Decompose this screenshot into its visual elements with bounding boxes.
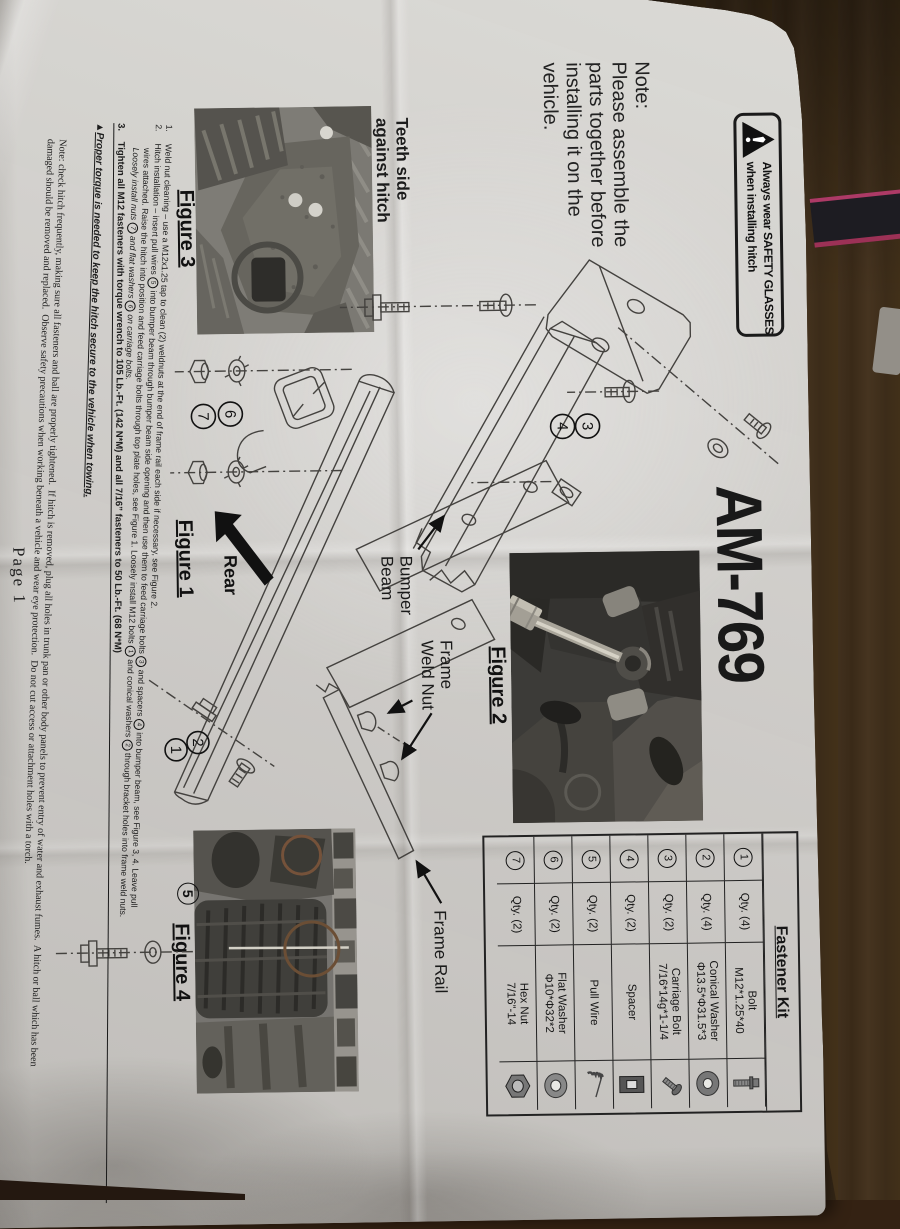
svg-text:6: 6 — [221, 410, 238, 419]
svg-text:1: 1 — [167, 746, 184, 755]
svg-text:2: 2 — [189, 738, 206, 747]
svg-text:3: 3 — [579, 422, 596, 431]
svg-text:4: 4 — [554, 422, 571, 431]
svg-text:7: 7 — [194, 412, 211, 421]
